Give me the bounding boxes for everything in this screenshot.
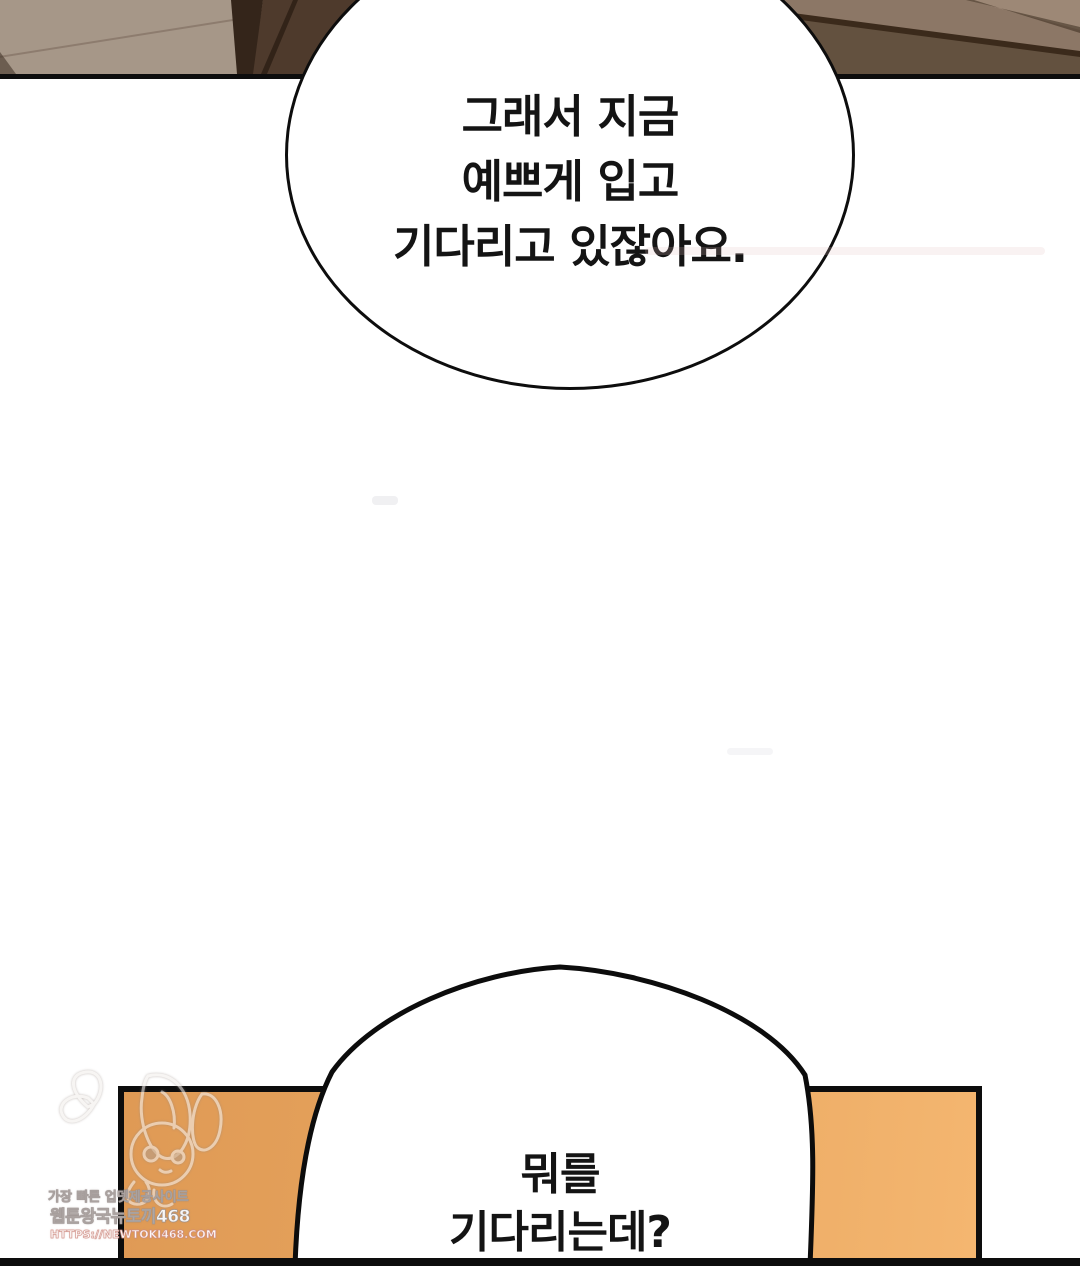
webtoon-page: 그래서 지금 예쁘게 입고 기다리고 있잖아요. 뭐를 기다리는데? 가장 빠른…	[0, 0, 1080, 1266]
watermark-site-name: 웹툰왕국뉴토끼468	[50, 1202, 190, 1227]
panel-frame-line-bottom	[0, 1258, 1080, 1266]
faint-smudge	[372, 496, 398, 505]
faint-watermark-smudge	[645, 247, 1045, 255]
watermark-site-url: HTTPS://NEWTOKI468.COM	[50, 1228, 217, 1241]
speech-bubble-bottom-text: 뭐를 기다리는데?	[295, 1146, 825, 1262]
faint-smudge	[727, 748, 773, 755]
